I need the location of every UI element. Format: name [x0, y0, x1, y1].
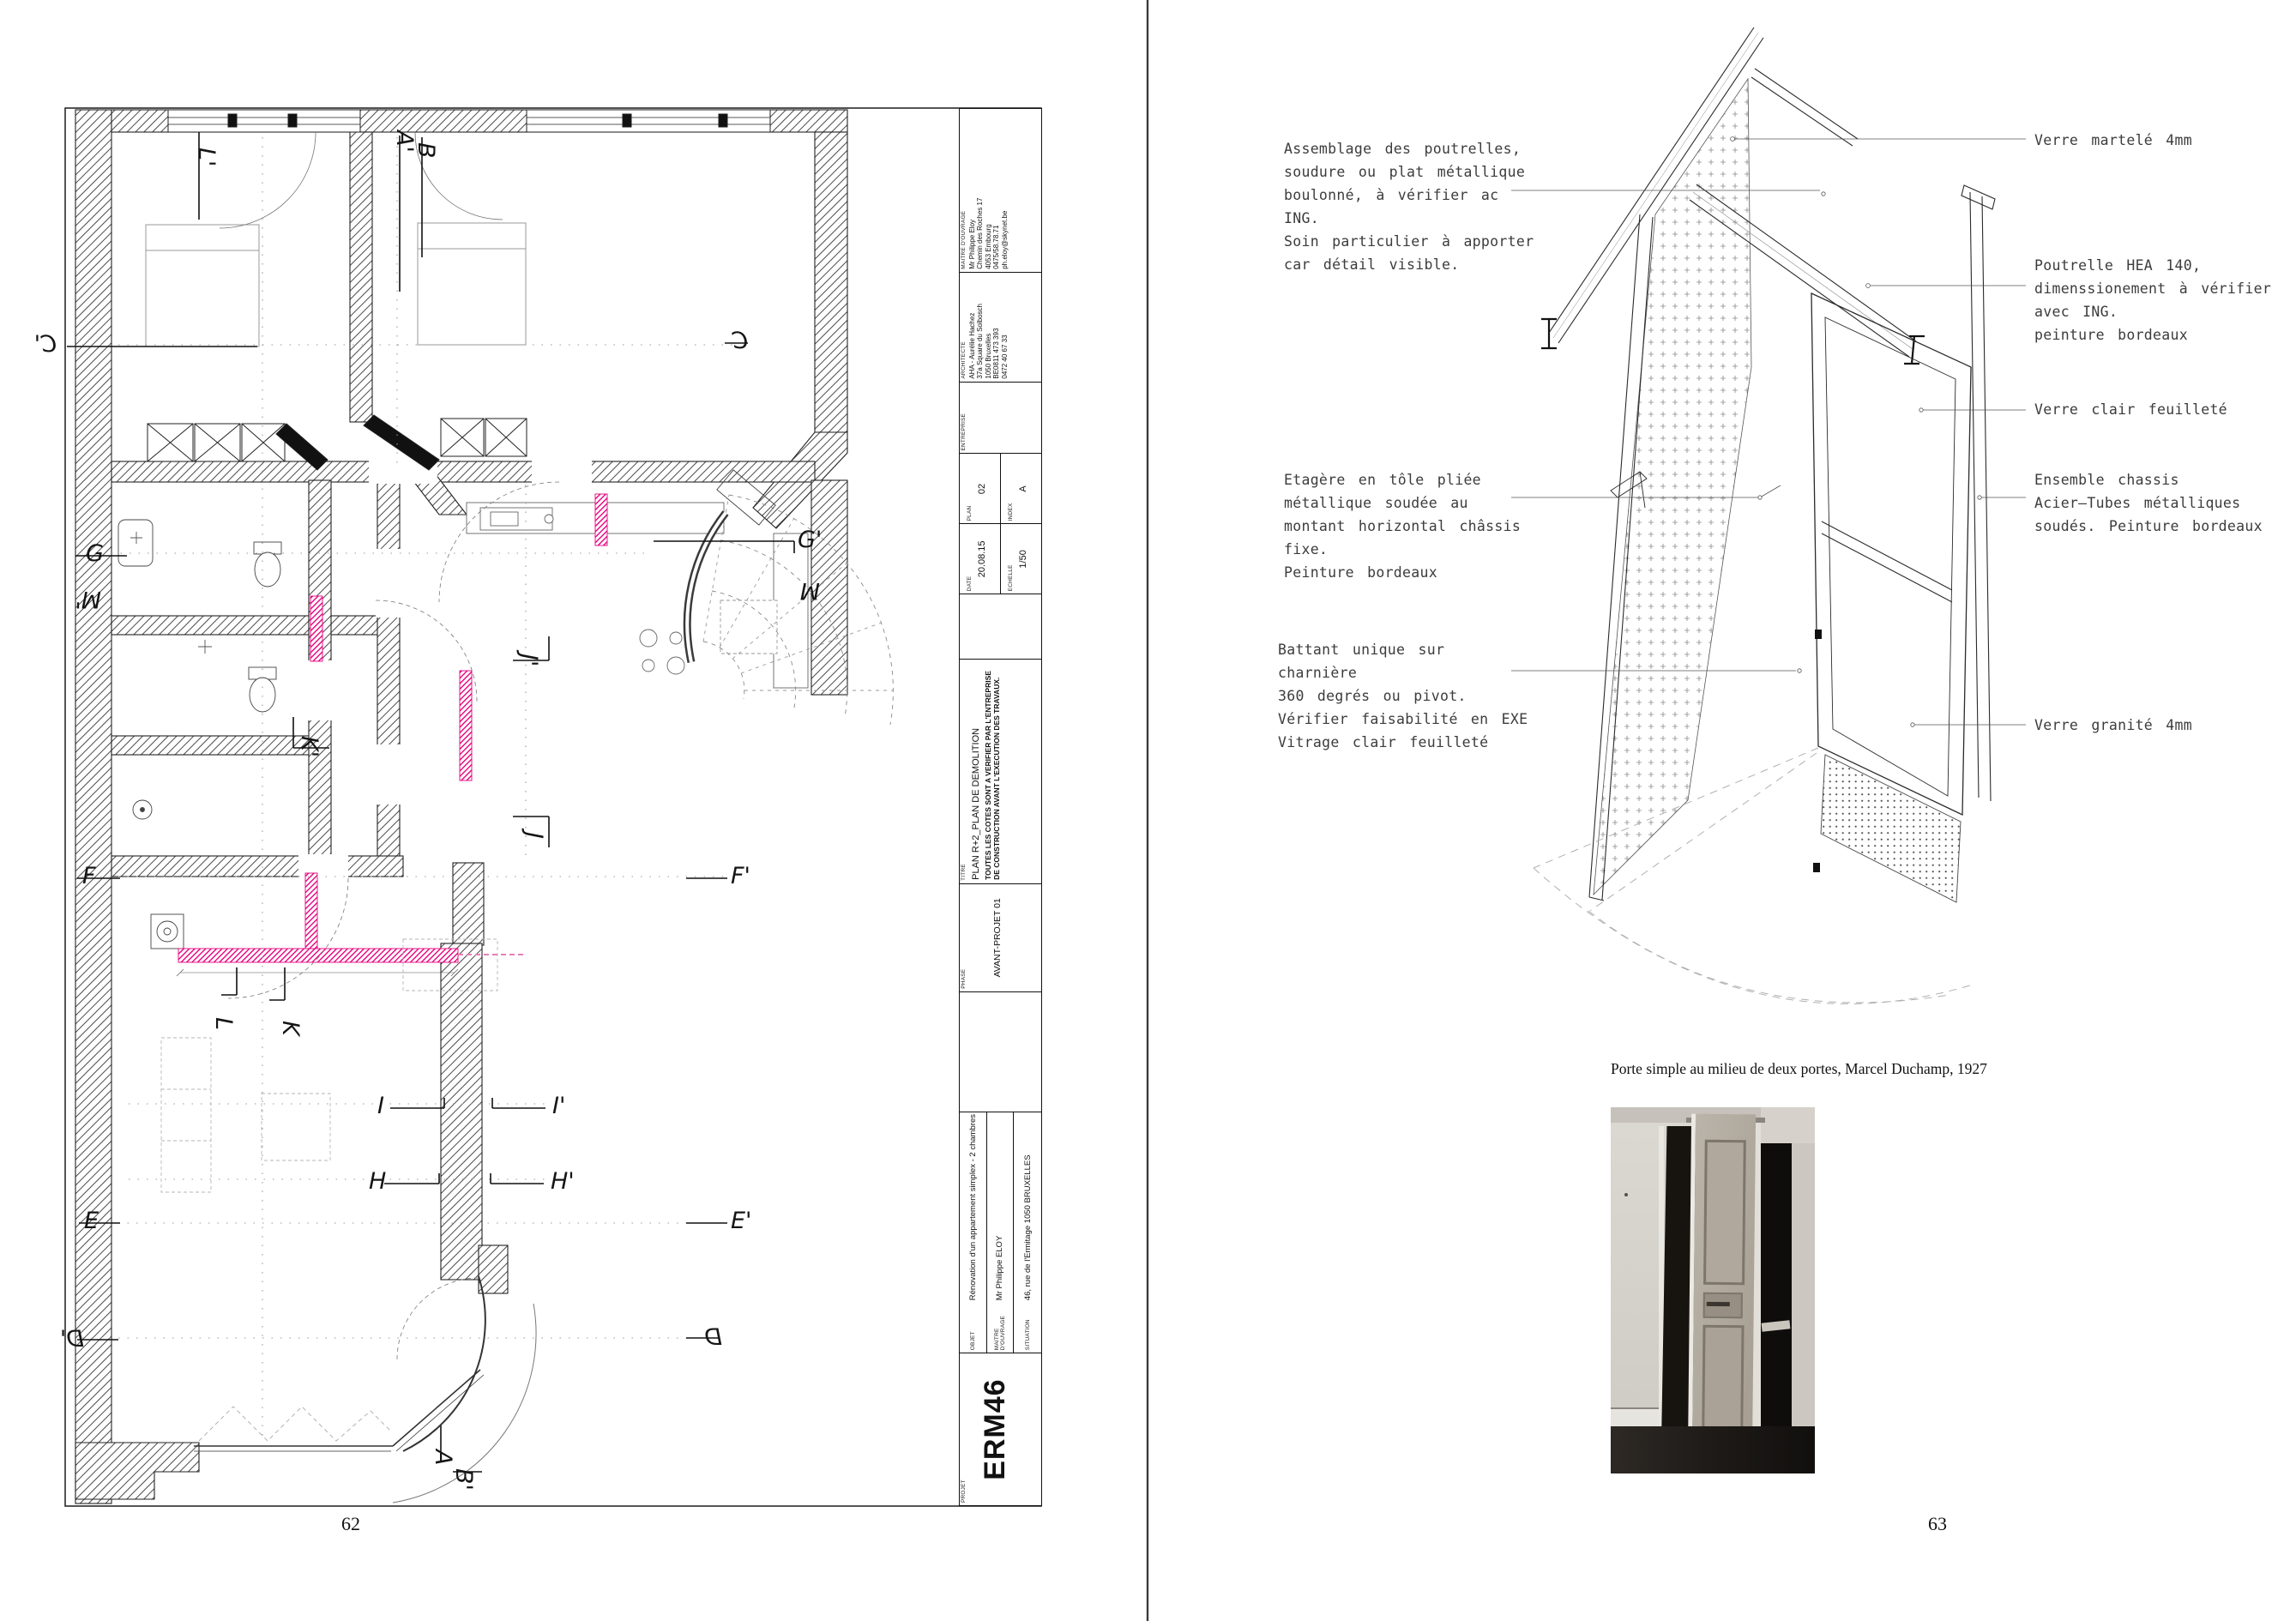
- window-top-1: [168, 110, 360, 132]
- architecte-label: ARCHITECTE: [960, 273, 967, 382]
- section-label-I: I: [377, 1093, 384, 1119]
- section-label-E: E: [84, 1208, 99, 1234]
- titleblock-phase: PHASE AVANT-PROJET 01: [960, 883, 1041, 991]
- section-label-K': K': [296, 736, 322, 757]
- echelle-label: ECHELLE: [1006, 564, 1014, 594]
- photo-right-wall: [1792, 1143, 1815, 1473]
- door-upper-panel: [1703, 1140, 1746, 1285]
- phase-label: PHASE: [960, 884, 967, 991]
- mo-value: Mr Philippe ELOY: [995, 1236, 1004, 1301]
- section-label-D': D': [60, 1326, 84, 1353]
- bay-window: [194, 1276, 536, 1503]
- titre-value: PLAN R+2_PLAN DE DEMOLITION: [967, 660, 981, 883]
- annotation-verre-granite: Verre granité 4mm: [2034, 714, 2283, 737]
- section-label-L: L: [210, 1017, 237, 1030]
- section-label-J: J: [521, 828, 547, 839]
- photo-floor: [1611, 1426, 1815, 1473]
- situation-label: SITUATION: [1024, 1300, 1032, 1353]
- index-value: A: [1018, 455, 1028, 524]
- photo-right-upper-wall: [1761, 1107, 1815, 1145]
- titleblock-architecte: ARCHITECTE AHA - Aurélie Hachez 37a Squa…: [960, 272, 1041, 382]
- titleblock-maitre-ouvrage: MAITRE D'OUVRAGE Mr Philippe Eloy Chemin…: [960, 109, 1041, 272]
- section-label-L': L': [193, 148, 220, 166]
- date-label: DATE: [965, 576, 973, 594]
- page-number-left: 62: [341, 1513, 360, 1535]
- phase-value: AVANT-PROJET 01: [991, 884, 1003, 991]
- section-label-F': F': [731, 863, 750, 889]
- titre-note: TOUTES LES COTES SONT A VERIFIER PAR L'E…: [981, 660, 1004, 883]
- situation-value: 46, rue de l'Ermitage 1050 BRUXELLES: [1023, 1154, 1033, 1300]
- section-label-D: D: [704, 1324, 722, 1351]
- section-label-E': E': [731, 1208, 751, 1234]
- annotation-battant: Battant unique sur charnière 360 degrés …: [1278, 638, 1535, 754]
- bath-fixtures: [118, 520, 281, 949]
- section-label-A: A: [430, 1448, 456, 1465]
- duchamp-photo: [1611, 1107, 1815, 1473]
- annotation-verre-martele: Verre martelé 4mm: [2034, 129, 2283, 152]
- titleblock-objet-group: OBJET Rénovation d'un appartement simple…: [960, 1112, 1041, 1353]
- glazed-panel-granite: [1821, 755, 1961, 902]
- section-label-C': C': [34, 331, 57, 358]
- section-label-M': M': [75, 586, 101, 612]
- plan-label: PLAN: [965, 506, 973, 524]
- leader-lines: [1511, 137, 2026, 727]
- annotation-ensemble-chassis: Ensemble chassis Acier–Tubes métalliques…: [2034, 468, 2283, 538]
- page-number-right: 63: [1928, 1513, 1947, 1535]
- section-label-G': G': [798, 527, 822, 553]
- floor-plan: [67, 110, 894, 1503]
- projet-label: PROJET: [960, 1353, 967, 1505]
- titre-label: TITRE: [960, 660, 967, 883]
- titleblock-projet: PROJET ERM46: [960, 1353, 1041, 1505]
- window-top-2: [527, 110, 770, 132]
- titleblock-date-echelle: DATE 20.08.15 ECHELLE 1/50: [960, 523, 1041, 594]
- plan-value: 02: [977, 455, 987, 524]
- book-spread: L'A'BC'CGM'G'MFF'EE'D'DJ'K'JLKII'HH'AB' …: [0, 0, 2296, 1621]
- section-label-B: B: [413, 142, 439, 159]
- photo-door: [1688, 1114, 1756, 1461]
- section-label-I': I': [552, 1093, 565, 1119]
- entreprise-label: ENTREPRISE: [960, 383, 967, 454]
- section-label-G: G: [86, 540, 104, 567]
- section-label-K: K: [277, 1021, 304, 1038]
- photo-caption: Porte simple au milieu de deux portes, M…: [1611, 1060, 1987, 1078]
- titleblock-empty-1: [960, 991, 1041, 1112]
- annotation-poutrelle: Poutrelle HEA 140, dimenssionement à vér…: [2034, 254, 2283, 346]
- annotation-etagere: Etagère en tôle pliée métallique soudée …: [1284, 468, 1534, 584]
- maitre-ouvrage-label: MAITRE D'OUVRAGE: [960, 109, 967, 272]
- section-label-J': J': [515, 649, 542, 666]
- titleblock-entreprise: ENTREPRISE: [960, 382, 1041, 454]
- annotation-assemblage: Assemblage des poutrelles, soudure ou pl…: [1284, 137, 1534, 276]
- section-label-M: M: [800, 577, 820, 604]
- titleblock-titre: TITRE PLAN R+2_PLAN DE DEMOLITION TOUTES…: [960, 659, 1041, 883]
- section-label-H': H': [551, 1168, 575, 1195]
- index-label: INDEX: [1006, 503, 1014, 524]
- section-label-H: H: [369, 1168, 386, 1195]
- photo-right-doorway: [1761, 1143, 1792, 1462]
- date-value: 20.08.15: [977, 524, 987, 594]
- axon-drawing: [1511, 27, 2026, 1003]
- section-label-C: C: [732, 328, 748, 354]
- echelle-value: 1/50: [1018, 524, 1028, 594]
- section-label-F: F: [82, 863, 96, 889]
- door-handle: [1707, 1302, 1730, 1306]
- titleblock-empty-2: [960, 594, 1041, 659]
- section-label-B': B': [450, 1468, 477, 1491]
- objet-label: OBJET: [969, 1300, 977, 1353]
- annotation-verre-clair: Verre clair feuilleté: [2034, 398, 2283, 421]
- door-lock-rail: [1703, 1293, 1743, 1318]
- beds: [146, 223, 526, 346]
- drawing-canvas: L'A'BC'CGM'G'MFF'EE'D'DJ'K'JLKII'HH'AB': [0, 0, 2296, 1621]
- entreprise-value: [967, 383, 969, 454]
- projet-value: ERM46: [967, 1353, 1025, 1505]
- maitre-ouvrage-value: Mr Philippe Eloy Chemin des Roches 17 40…: [967, 109, 1010, 272]
- architecte-value: AHA - Aurélie Hachez 37a Square du Solbo…: [967, 273, 1010, 382]
- objet-value: Rénovation d'un appartement simplex - 2 …: [968, 1114, 978, 1300]
- mo-label: MAITRE D'OUVRAGE: [993, 1300, 1006, 1353]
- title-block: PROJET ERM46 OBJET Rénovation d'un appar…: [959, 108, 1042, 1506]
- titleblock-plan-index: PLAN 02 INDEX A: [960, 454, 1041, 524]
- photo-wall-mark: [1624, 1193, 1628, 1196]
